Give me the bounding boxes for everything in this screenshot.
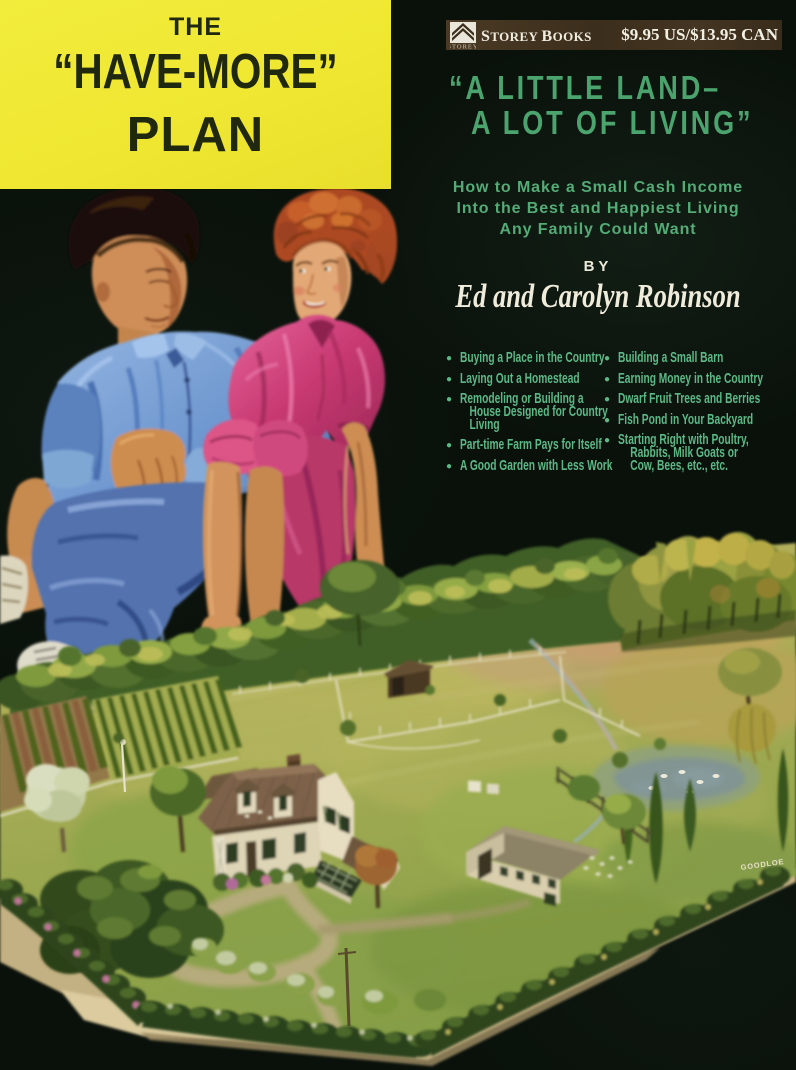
svg-text:STOREY: STOREY [450,44,476,50]
